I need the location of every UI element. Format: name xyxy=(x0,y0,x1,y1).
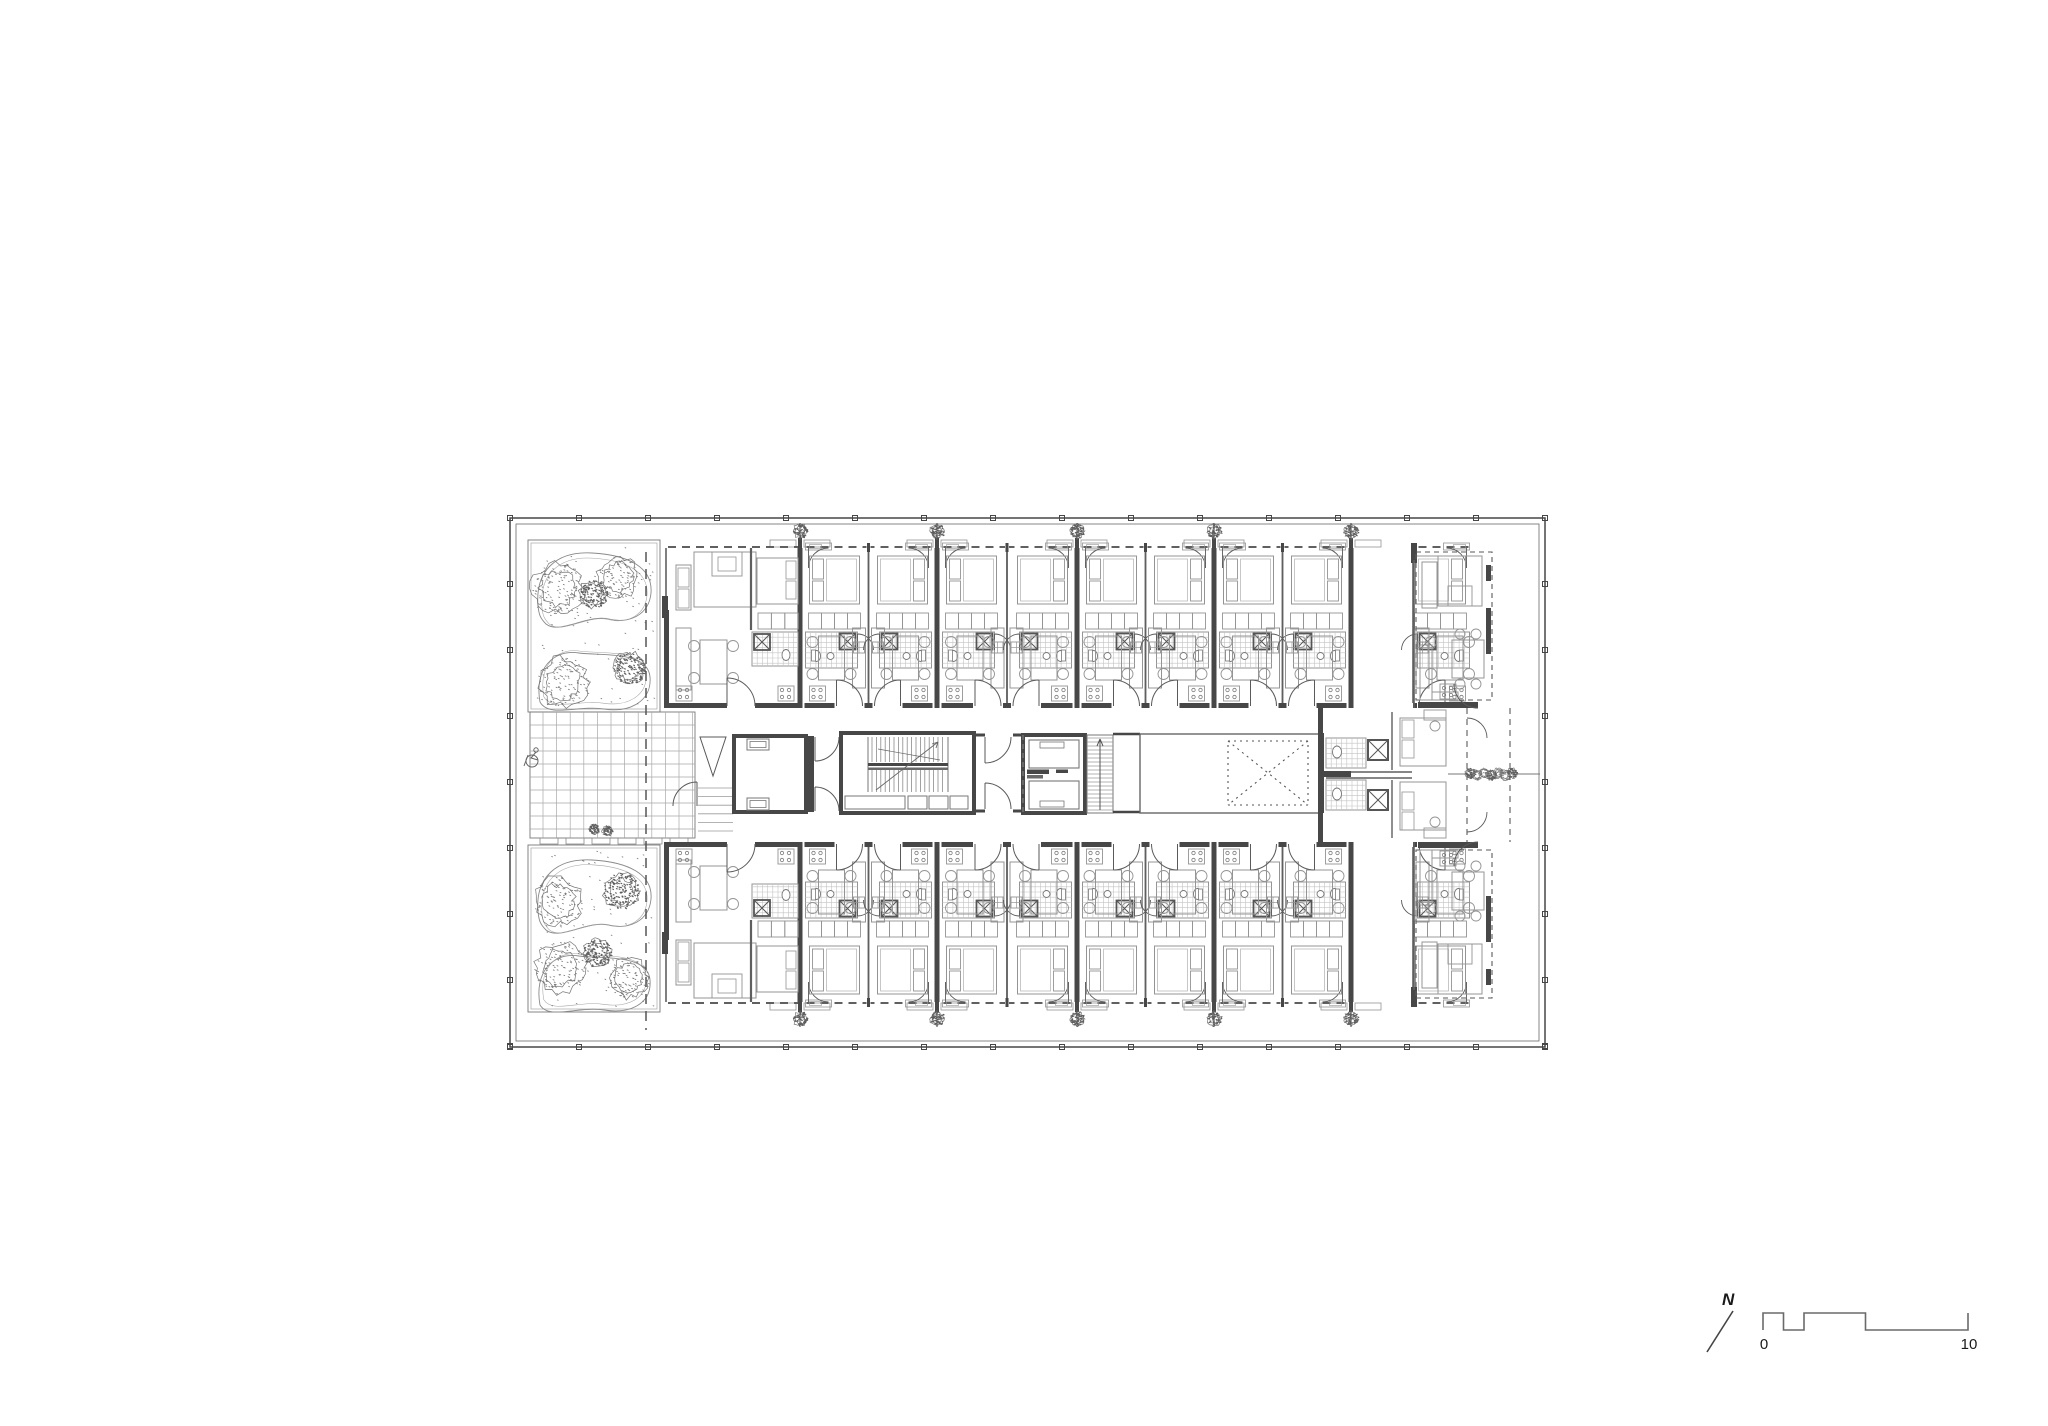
architectural-sheet: N 0 10 xyxy=(0,0,2048,1426)
studio-unit-mirror xyxy=(1278,842,1347,1007)
facade-planter xyxy=(1344,1010,1360,1027)
lightwell-void xyxy=(1140,734,1320,813)
studio-unit-mirror xyxy=(1278,543,1347,708)
person-icon xyxy=(602,826,614,836)
corner-apartment-left xyxy=(662,842,798,1003)
stair xyxy=(841,733,974,813)
facade-planter xyxy=(930,1010,945,1027)
floor-plan-drawing xyxy=(0,0,2048,1426)
facade-planter xyxy=(1070,1010,1085,1027)
person-icon xyxy=(588,824,599,834)
studio-unit-pair xyxy=(1082,543,1151,708)
roof-garden-top xyxy=(528,540,660,712)
apartment-band-bottom xyxy=(662,842,1492,1027)
north-arrow xyxy=(1707,1311,1733,1352)
studio-unit-pair xyxy=(942,543,1011,708)
facade-planter xyxy=(1344,523,1360,540)
apartment-band xyxy=(662,523,1492,708)
right-wing xyxy=(1318,708,1540,842)
corner-apartment-left xyxy=(662,547,798,708)
studio-unit-pair xyxy=(1219,842,1288,1007)
studio-unit-mirror xyxy=(1141,543,1210,708)
studio-unit-mirror xyxy=(1004,543,1073,708)
studio-unit-mirror xyxy=(1141,842,1210,1007)
studio-unit-mirror xyxy=(864,543,933,708)
studio-unit-mirror xyxy=(1004,842,1073,1007)
studio-unit-mirror xyxy=(864,842,933,1007)
facade-planter xyxy=(1207,523,1222,540)
studio-unit-pair xyxy=(805,842,874,1007)
facade-planter xyxy=(793,523,808,540)
studio-unit-pair xyxy=(1082,842,1151,1007)
studio-unit-pair xyxy=(1219,543,1288,708)
facade-planter xyxy=(793,1010,808,1027)
apartment-band xyxy=(662,842,1492,1027)
escape-ladder xyxy=(1087,735,1113,813)
void-marker xyxy=(700,737,726,776)
scale-label-start: 0 xyxy=(1749,1336,1779,1353)
facade-planter xyxy=(930,523,945,540)
facade-planter xyxy=(1207,1010,1222,1027)
scale-bar xyxy=(1763,1313,1968,1330)
service-room xyxy=(734,736,839,812)
circulation-core xyxy=(698,733,1324,831)
roof-garden-bottom xyxy=(528,845,660,1012)
north-label: N xyxy=(1722,1290,1734,1310)
elevators xyxy=(1023,735,1085,813)
studio-unit-pair xyxy=(942,842,1011,1007)
studio-unit-pair xyxy=(805,543,874,708)
facade-planter xyxy=(1070,523,1085,540)
scale-label-end: 10 xyxy=(1953,1336,1985,1353)
